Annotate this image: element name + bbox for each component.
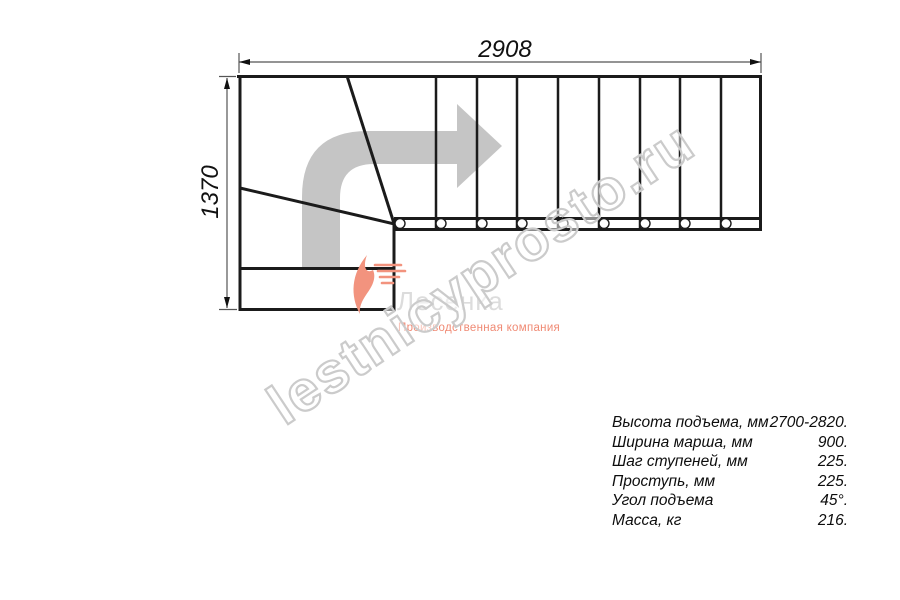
left-dimension-label: 1370 <box>197 165 224 219</box>
spec-value: 45°. <box>820 491 848 511</box>
spec-row: Ширина марша, мм 900. <box>612 433 848 453</box>
logo-name: Лесенка <box>397 288 504 314</box>
company-logo: Лесенка Производственная компания <box>346 250 576 340</box>
spec-value: 216. <box>818 511 848 531</box>
baluster-circles <box>395 219 731 229</box>
spec-label: Проступь, мм <box>612 472 715 492</box>
spec-row: Угол подъема 45°. <box>612 491 848 511</box>
spec-row: Высота подъема, мм 2700-2820. <box>612 413 848 433</box>
spec-label: Масса, кг <box>612 511 681 531</box>
spec-label: Высота подъема, мм <box>612 413 769 433</box>
spec-value: 2700-2820. <box>770 413 848 433</box>
spec-value: 225. <box>818 472 848 492</box>
spec-row: Проступь, мм 225. <box>612 472 848 492</box>
spec-label: Шаг ступеней, мм <box>612 452 748 472</box>
top-dimension-label: 2908 <box>477 36 532 63</box>
logo-tagline: Производственная компания <box>398 323 560 335</box>
stair-plan-page: 2908 1370 Лесенка Производственная компа… <box>0 0 900 600</box>
spec-row: Шаг ступеней, мм 225. <box>612 452 848 472</box>
spec-value: 900. <box>818 433 848 453</box>
direction-arrow-icon <box>302 104 502 268</box>
spec-value: 225. <box>818 452 848 472</box>
spec-row: Масса, кг 216. <box>612 511 848 531</box>
spec-label: Угол подъема <box>612 491 713 511</box>
specs-list: Высота подъема, мм 2700-2820. Ширина мар… <box>612 413 848 530</box>
spec-label: Ширина марша, мм <box>612 433 753 453</box>
